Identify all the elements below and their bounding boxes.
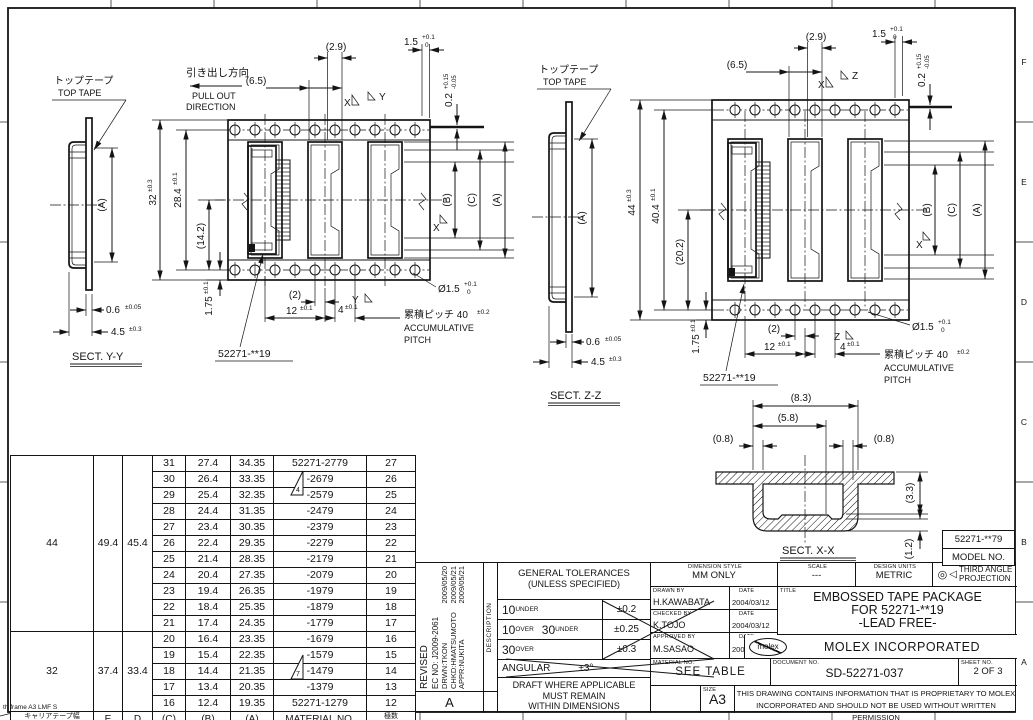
table-cell: 16 <box>153 696 186 712</box>
projection-cell: ◎ ◁ THIRD ANGLEPROJECTION <box>933 563 1017 587</box>
dim-tolerance: ±0.1 <box>300 305 313 312</box>
revision-appr: APPR:NUKITA <box>458 640 467 689</box>
table-cell: 17 <box>367 616 416 632</box>
dim-tolerance: ±0.05 <box>605 336 622 343</box>
angular-label: ANGULAR <box>502 663 550 674</box>
table-header-cell: (A) <box>231 712 274 720</box>
table-cell: 26.35 <box>231 584 274 600</box>
dim-tolerance: ±0.3 <box>129 326 142 333</box>
table-group-cell: 44 <box>11 456 94 632</box>
dim-label: 44 <box>627 204 638 216</box>
dim-label: 4.5 <box>111 327 125 338</box>
table-header-row: キャリアテープ幅CARRIER TAPE WIDTH E D (C) (B) (… <box>11 712 416 720</box>
dimension-style-cell: DIMENSION STYLE MM ONLY <box>651 563 778 587</box>
table-cell: -1979 <box>274 584 367 600</box>
table-cell: 21.35 <box>231 664 274 680</box>
zone-letter: D <box>1021 297 1027 307</box>
revision-status: REVISED <box>419 566 431 689</box>
table-cell: 25 <box>367 488 416 504</box>
table-cell: 20.35 <box>231 680 274 696</box>
dim-label: Ø1.5 <box>438 284 460 295</box>
dim-tolerance: ±0.3 <box>609 356 622 363</box>
dim-label: 40.4 <box>651 204 662 224</box>
view-sect-yy: トップテープ TOP TAPE (A) 0.6 ±0.05 4.5 ±0.3 S… <box>50 75 142 367</box>
sprocket-holes-bottom <box>730 302 900 318</box>
draft-note: MUST REMAIN <box>498 691 650 702</box>
table-cell: 17.4 <box>186 616 231 632</box>
dim-label: (0.8) <box>713 434 734 445</box>
dim-label: 1.5 <box>404 37 418 48</box>
pull-out-label-jp: 引き出し方向 <box>186 66 249 79</box>
accumulative-pitch-en: PITCH <box>404 335 431 345</box>
projection-cone-icon: ◁ <box>949 569 957 580</box>
dim-label: (6.5) <box>727 60 748 71</box>
table-row: 3237.433.42016.423.35-167916 <box>11 632 416 648</box>
table-cell: 20 <box>367 568 416 584</box>
dim-label: 1.75 <box>691 334 702 354</box>
table-cell: 52271-1279 <box>274 696 367 712</box>
view-tape-44: X X Z Z 44±0.3 40.4±0.1 (20.2) 1.75±0.1 … <box>626 26 994 385</box>
sheet-no-label: SHEET NO. <box>959 659 1017 666</box>
table-cell: 22 <box>153 600 186 616</box>
table-cell: 29 <box>153 488 186 504</box>
dim-label: 1.5 <box>872 29 886 40</box>
dim-tolerance: +0.1 <box>464 281 477 288</box>
draft-note: DRAFT WHERE APPLICABLE <box>498 680 650 691</box>
table-cell: -2479 <box>274 504 367 520</box>
dim-tolerance: ±0.1 <box>778 341 791 348</box>
company-cell: molex MOLEX INCORPORATED <box>744 635 1017 659</box>
table-group-cell: 33.4 <box>123 632 153 712</box>
table-group-cell: 37.4 <box>94 632 123 712</box>
dimension-style-value: MM ONLY <box>651 570 777 581</box>
cut-marker: X <box>916 240 923 251</box>
approved-by-value: M.SASAO <box>653 644 694 654</box>
view-sect-xx: (8.3) (5.8) (0.8) (0.8) (3.3) (1.2) SECT… <box>713 393 928 561</box>
table-cell: 29.35 <box>231 536 274 552</box>
dimension-style-label: DIMENSION STYLE <box>651 563 777 570</box>
table-cell: 14.4 <box>186 664 231 680</box>
table-cell: 21.4 <box>186 552 231 568</box>
top-tape-label-jp: トップテープ <box>54 75 113 87</box>
revision-number: 4 <box>296 487 300 494</box>
size-cell: SIZE A3 <box>701 686 735 713</box>
table-header-cell: D <box>123 712 153 720</box>
table-cell: 31.35 <box>231 504 274 520</box>
table-cell: 23 <box>153 584 186 600</box>
dim-tolerance: ±0.1 <box>690 319 697 332</box>
table-cell: 19 <box>367 584 416 600</box>
revision-notes: REVISED EC NO: J2009-2061 DRWN:TKON2009/… <box>419 566 481 689</box>
design-units-cell: DESIGN UNITS METRIC <box>856 563 933 587</box>
table-cell: 26 <box>153 536 186 552</box>
checked-date: 2004/03/12 <box>732 621 770 630</box>
dim-label: (1.2) <box>904 539 915 560</box>
dim-tolerance: ±0.3 <box>626 189 633 202</box>
tolerance-range: 10 <box>502 623 515 637</box>
dim-label: (0.8) <box>874 434 895 445</box>
proprietary-note: THIS DRAWING CONTAINS INFORMATION THAT I… <box>735 686 1017 713</box>
sprocket-holes-top <box>730 102 900 118</box>
title-block: REVISED EC NO: J2009-2061 DRWN:TKON2009/… <box>415 562 1016 712</box>
table-cell: 25.35 <box>231 600 274 616</box>
dim-label: (A) <box>97 198 108 211</box>
dim-label: 4 <box>840 342 846 353</box>
table-cell: 14 <box>367 664 416 680</box>
table-cell: 24 <box>153 568 186 584</box>
tolerance-title: GENERAL TOLERANCES <box>498 568 650 579</box>
dim-tolerance: ±0.1 <box>345 304 358 311</box>
table-cell: 25 <box>153 552 186 568</box>
table-cell: 27 <box>153 520 186 536</box>
section-title: SECT. X-X <box>782 545 835 557</box>
dim-label: (A) <box>492 193 503 206</box>
dim-tolerance: -0.05 <box>452 75 458 89</box>
dim-label: 28.4 <box>173 188 184 208</box>
table-cell: 25.4 <box>186 488 231 504</box>
tolerance-range-qualifier: UNDER <box>555 626 578 633</box>
frame-corner-note: th frame A3 LMF S <box>3 704 57 711</box>
date-label: DATE <box>737 587 754 594</box>
accumulative-pitch-en: ACCUMULATIVE <box>884 363 954 373</box>
cut-marker: X <box>818 80 825 91</box>
checked-by-label: CHECKED BY <box>651 610 777 617</box>
dim-label: (5.8) <box>778 413 799 424</box>
dim-label: (6.5) <box>246 76 267 87</box>
dim-label: 0.6 <box>106 305 120 316</box>
table-cell: 28.35 <box>231 552 274 568</box>
table-group-cell: 49.4 <box>94 456 123 632</box>
table-cell: -2179 <box>274 552 367 568</box>
table-cell: 12.4 <box>186 696 231 712</box>
draft-note: WITHIN DIMENSIONS <box>498 701 650 712</box>
dim-tolerance: ±0.1 <box>847 341 860 348</box>
top-tape-label-en: TOP TAPE <box>58 88 101 98</box>
description-label: DESCRIPTION <box>486 566 498 689</box>
section-title: SECT. Z-Z <box>550 390 602 402</box>
tolerance-value: ±0.2 <box>602 600 650 619</box>
table-cell: 18.4 <box>186 600 231 616</box>
drawn-by-value: H.KAWABATA <box>653 597 710 607</box>
pull-out-label-en: DIRECTION <box>186 102 236 112</box>
revision-strip: REVISED EC NO: J2009-2061 DRWN:TKON2009/… <box>416 563 484 713</box>
table-header-cell: キャリアテープ幅CARRIER TAPE WIDTH <box>11 712 94 720</box>
tolerance-subtitle: (UNLESS SPECIFIED) <box>498 579 650 589</box>
part-number-label: 52271-**19 <box>703 372 756 384</box>
cut-marker: X <box>433 223 440 234</box>
accumulative-pitch-jp: 累積ピッチ 40 <box>884 348 948 361</box>
table-cell: 33.35 <box>231 472 274 488</box>
spec-table: 4449.445.43127.434.3552271-2779273026.43… <box>10 455 416 720</box>
dim-label: (A) <box>577 211 588 224</box>
dim-tolerance: +0.15 <box>917 53 923 69</box>
revision-date: 2009/05/21 <box>458 566 467 604</box>
table-cell: 23 <box>367 520 416 536</box>
top-tape-label-jp: トップテープ <box>539 64 598 76</box>
table-cell: 22 <box>367 536 416 552</box>
table-header-cell: 極数CKT. <box>367 712 416 720</box>
dim-tolerance: ±0.2 <box>477 309 490 316</box>
dim-label: 0.2 <box>917 73 928 87</box>
projection-label: PROJECTION <box>959 574 1011 583</box>
dim-tolerance: +0.15 <box>444 73 450 89</box>
dim-tolerance: ±0.1 <box>172 172 179 185</box>
document-no-cell: DOCUMENT NO. SD-52271-037 <box>771 659 959 686</box>
accumulative-pitch-en: PITCH <box>884 375 911 385</box>
dim-label: (2.9) <box>806 32 827 43</box>
zone-letter: F <box>1021 57 1026 67</box>
table-group-cell: 45.4 <box>123 456 153 632</box>
dim-label: (8.3) <box>791 393 812 404</box>
dim-label: 4.5 <box>591 357 605 368</box>
top-tape-label-en: TOP TAPE <box>543 77 586 87</box>
zone-letter: B <box>1021 537 1027 547</box>
table-cell: 27.4 <box>186 456 231 472</box>
dim-tolerance: -0.05 <box>925 55 931 69</box>
design-units-value: METRIC <box>856 570 932 581</box>
table-cell: -2079 <box>274 568 367 584</box>
proprietary-line: INCORPORATED AND SHOULD NOT BE USED WITH… <box>735 700 1017 720</box>
table-cell: 24.35 <box>231 616 274 632</box>
description-strip: DESCRIPTION REV <box>484 563 498 713</box>
projection-circle-icon: ◎ <box>938 568 948 581</box>
title-cell: TITLE EMBOSSED TAPE PACKAGE FOR 52271-**… <box>778 587 1017 635</box>
table-cell: 13 <box>367 680 416 696</box>
date-label: DATE <box>737 610 754 617</box>
tolerance-range: 30 <box>542 623 555 637</box>
dim-label: (20.2) <box>675 239 686 265</box>
table-cell: 20.4 <box>186 568 231 584</box>
table-cell: 21 <box>367 552 416 568</box>
table-row: 4449.445.43127.434.3552271-277927 <box>11 456 416 472</box>
sheet-no-value: 2 OF 3 <box>959 666 1017 677</box>
dim-label: 0.2 <box>444 93 455 107</box>
design-units-label: DESIGN UNITS <box>856 563 932 570</box>
drawing-sheet: F E D C B A トップテープ TOP TAPE (A) 0.6 ±0.0… <box>0 0 1033 720</box>
table-cell: 32.35 <box>231 488 274 504</box>
drawing-title: -LEAD FREE- <box>778 617 1017 630</box>
table-cell: 19.35 <box>231 696 274 712</box>
dim-tolerance: ±0.2 <box>957 349 970 356</box>
dim-tolerance: 0 <box>425 42 429 49</box>
table-cell: 19.4 <box>186 584 231 600</box>
material-no-label: MATERIAL NO. <box>651 659 770 666</box>
table-cell: -1679 <box>274 632 367 648</box>
dim-label: 0.6 <box>586 337 600 348</box>
table-cell: 18 <box>153 664 186 680</box>
tolerance-value: ±0.25 <box>602 620 650 639</box>
checked-by-value: K.TOJO <box>653 620 685 630</box>
revision-triangle: 7 <box>288 652 308 682</box>
table-cell: 20 <box>153 632 186 648</box>
sheet-no-cell: SHEET NO. 2 OF 3 <box>959 659 1017 686</box>
connector-in-pocket <box>728 143 770 277</box>
scale-label: SCALE <box>778 563 855 570</box>
dim-label: 12 <box>286 306 298 317</box>
dim-label: 4 <box>338 305 344 316</box>
drawn-date: 2004/03/12 <box>732 598 770 607</box>
part-number-label: 52271-**19 <box>218 348 271 360</box>
table-cell: 27 <box>367 456 416 472</box>
table-cell: -2379 <box>274 520 367 536</box>
table-cell: 16 <box>367 632 416 648</box>
tolerance-range: 10 <box>502 603 515 617</box>
dim-tolerance: +0.1 <box>938 319 951 326</box>
table-cell: 31 <box>153 456 186 472</box>
dim-tolerance: +0.1 <box>422 34 435 41</box>
dim-tolerance: +0.1 <box>890 26 903 33</box>
table-cell: 21 <box>153 616 186 632</box>
table-cell: 34.35 <box>231 456 274 472</box>
table-cell: 12 <box>367 696 416 712</box>
angular-value: ±3° <box>578 663 593 674</box>
table-cell: 24 <box>367 504 416 520</box>
dim-label: (B) <box>442 193 453 206</box>
dim-label: Ø1.5 <box>912 322 934 333</box>
model-no-box: 52271-**79 MODEL NO. <box>942 530 1015 566</box>
dim-label: (14.2) <box>196 223 207 249</box>
dim-label: 32 <box>148 194 159 206</box>
dim-tolerance: 0 <box>893 34 897 41</box>
dim-tolerance: ±0.1 <box>650 188 657 201</box>
table-cell: -2279 <box>274 536 367 552</box>
tolerance-range: 30 <box>502 643 515 657</box>
table-group-cell: 32 <box>11 632 94 712</box>
dim-tolerance: ±0.1 <box>203 281 210 294</box>
model-no-label: MODEL NO. <box>943 549 1014 566</box>
dim-label: 1.75 <box>204 296 215 316</box>
dim-label: (A) <box>972 203 983 216</box>
dim-label: (C) <box>467 193 478 207</box>
size-value: A3 <box>701 691 734 707</box>
table-cell: 23.4 <box>186 520 231 536</box>
section-title: SECT. Y-Y <box>72 351 124 363</box>
revision-triangle: 4 <box>288 468 308 498</box>
scale-value: --- <box>778 570 855 581</box>
table-cell: 30 <box>153 472 186 488</box>
dim-tolerance: ±0.05 <box>125 304 142 311</box>
material-no-value: SEE TABLE <box>651 666 770 678</box>
tolerance-range-qualifier: OVER <box>515 626 533 633</box>
table-cell: 28 <box>153 504 186 520</box>
dim-label: 12 <box>764 342 776 353</box>
accumulative-pitch-jp: 累積ピッチ 40 <box>404 308 468 321</box>
dim-tolerance: 0 <box>941 327 945 334</box>
table-cell: 23.35 <box>231 632 274 648</box>
zone-letter: C <box>1021 417 1027 427</box>
table-cell: 15.4 <box>186 648 231 664</box>
table-header-cell: E <box>94 712 123 720</box>
dim-label: (B) <box>922 203 933 216</box>
dim-label: (2.9) <box>326 42 347 53</box>
dim-label: (2) <box>289 290 301 301</box>
view-tape-32: 引き出し方向 PULL OUT DIRECTION X X Y Y 32±0.3… <box>147 34 514 361</box>
table-cell: 16.4 <box>186 632 231 648</box>
tolerance-range-qualifier: OVER <box>515 646 533 653</box>
blank-cell <box>651 686 701 713</box>
zone-letter: A <box>1021 657 1027 667</box>
dim-label: (3.3) <box>905 483 916 504</box>
molex-logo: molex <box>749 638 787 656</box>
cut-marker: Y <box>379 92 386 103</box>
table-cell: 22.4 <box>186 536 231 552</box>
table-cell: 24.4 <box>186 504 231 520</box>
table-header-cell: (C) <box>153 712 186 720</box>
tolerance-range-qualifier: UNDER <box>515 606 538 613</box>
dim-tolerance: 0 <box>467 289 471 296</box>
table-cell: 26.4 <box>186 472 231 488</box>
dim-tolerance: ±0.3 <box>147 179 154 192</box>
dim-label: (2) <box>768 324 780 335</box>
material-no-cell: MATERIAL NO. SEE TABLE <box>651 659 771 686</box>
table-cell: -1879 <box>274 600 367 616</box>
zone-letter: E <box>1021 177 1027 187</box>
tolerance-box: GENERAL TOLERANCES (UNLESS SPECIFIED) 10… <box>498 563 651 713</box>
table-cell: 15 <box>367 648 416 664</box>
table-header-cell: (B) <box>186 712 231 720</box>
table-cell: -1779 <box>274 616 367 632</box>
cut-marker: X <box>344 98 351 109</box>
tolerance-value: ±0.3 <box>602 640 650 659</box>
table-cell: 27.35 <box>231 568 274 584</box>
table-cell: 17 <box>153 680 186 696</box>
table-header-cell: MATERIAL NO. <box>274 712 367 720</box>
model-no-value: 52271-**79 <box>943 531 1014 549</box>
document-no-label: DOCUMENT NO. <box>771 659 958 666</box>
revision-letter: A <box>416 691 483 713</box>
pull-out-label-en: PULL OUT <box>192 91 236 101</box>
proprietary-line: THIS DRAWING CONTAINS INFORMATION THAT I… <box>735 688 1017 700</box>
accumulative-pitch-en: ACCUMULATIVE <box>404 323 474 333</box>
view-sect-zz: トップテープ TOP TAPE (A) 0.6 ±0.05 4.5 ±0.3 S… <box>532 64 622 406</box>
checked-by-cell: CHECKED BY DATE K.TOJO 2004/03/12 <box>651 610 778 633</box>
drawn-by-label: DRAWN BY <box>651 587 777 594</box>
table-cell: 13.4 <box>186 680 231 696</box>
table-cell: 30.35 <box>231 520 274 536</box>
drawn-by-cell: DRAWN BY DATE H.KAWABATA 2004/03/12 <box>651 587 778 610</box>
company-name: MOLEX INCORPORATED <box>787 640 1017 654</box>
revision-number: 7 <box>296 671 300 678</box>
scale-cell: SCALE --- <box>778 563 856 587</box>
table-cell: 18 <box>367 600 416 616</box>
document-no-value: SD-52271-037 <box>771 666 958 680</box>
table-cell: 19 <box>153 648 186 664</box>
table-cell: 22.35 <box>231 648 274 664</box>
dim-label: (C) <box>947 203 958 217</box>
cut-marker: Z <box>852 71 858 82</box>
table-cell: 26 <box>367 472 416 488</box>
